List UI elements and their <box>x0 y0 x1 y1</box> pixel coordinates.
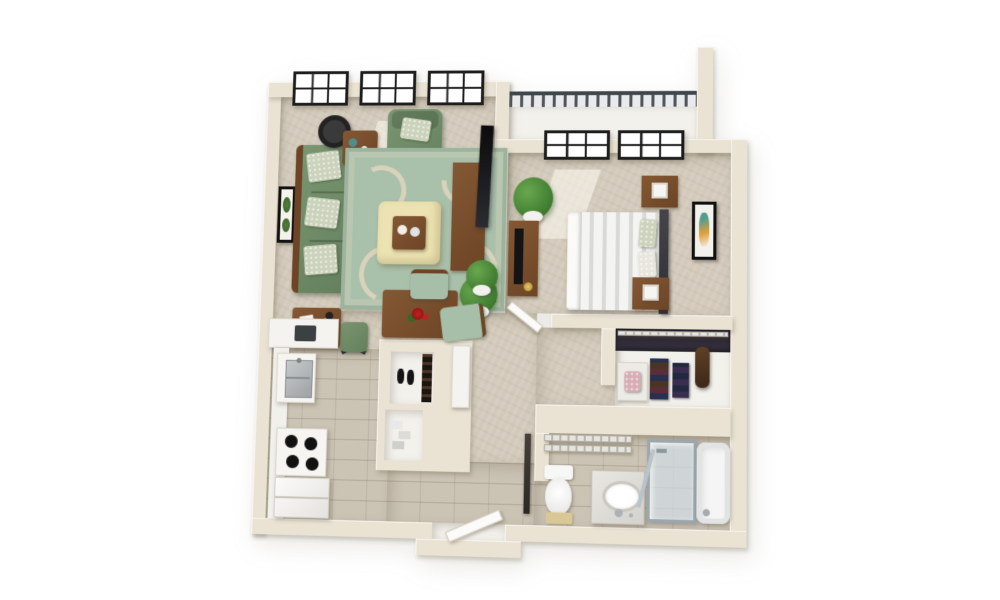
balcony-railing <box>509 91 697 107</box>
plant-pot <box>473 285 491 296</box>
serving-tray <box>392 216 426 250</box>
desk-chair <box>336 320 373 360</box>
entry-threshold-step <box>415 539 521 559</box>
sofa-pillow <box>303 244 337 276</box>
wall-art-print <box>280 189 293 240</box>
living-room-window <box>359 71 416 106</box>
nightstand <box>641 176 678 208</box>
accent-chair-pillow <box>400 117 432 142</box>
wall-bottom-left <box>251 518 432 539</box>
bedroom-wall-art <box>692 202 717 260</box>
bedroom-dresser <box>507 221 538 297</box>
shower-head <box>656 449 666 453</box>
shoe-rack <box>421 354 432 402</box>
closet-cushion <box>624 371 641 392</box>
bed-pillow <box>638 251 657 278</box>
sofa-pillow <box>306 150 342 183</box>
bedroom-window <box>544 130 610 159</box>
wall-closet-bath-band <box>535 404 730 437</box>
wall-bedroom-top <box>495 139 734 153</box>
linen-closet-interior <box>384 410 423 461</box>
wall-closet-left <box>601 328 616 385</box>
folded-clothes-stack <box>650 358 669 399</box>
built-in-cabinet <box>451 345 470 408</box>
living-room-window <box>292 71 349 106</box>
sofa-pillow <box>304 196 341 229</box>
toilet <box>542 465 575 519</box>
apartment-floorplan <box>237 42 750 568</box>
refrigerator <box>273 477 330 519</box>
floorplan-canvas <box>0 0 1000 600</box>
folded-clothes-stack <box>672 363 689 398</box>
shoes-pair <box>397 369 404 384</box>
wall-balcony-corner-tall <box>696 47 713 153</box>
bathtub <box>696 442 730 524</box>
vanity <box>591 470 645 525</box>
living-room-window <box>427 70 484 105</box>
bed-pillow <box>638 219 657 248</box>
cube-table-lamp <box>642 284 658 300</box>
bedroom-tv <box>514 229 524 285</box>
dining-chair <box>439 303 486 342</box>
oval-sink <box>602 481 641 513</box>
stainless-sink <box>285 360 314 398</box>
stove <box>275 427 328 476</box>
dresser-lamp <box>524 282 533 291</box>
faucet <box>614 509 622 518</box>
closet-dark-shelf-interior <box>615 328 730 352</box>
garment-bag <box>695 347 710 388</box>
cube-table-lamp <box>652 183 668 199</box>
flower-centerpiece <box>412 308 424 320</box>
dining-chair <box>410 269 448 299</box>
nightstand <box>632 277 669 310</box>
wall-bedroom-bottom <box>551 314 733 330</box>
bath-mat <box>546 512 573 524</box>
kitchen-upper-counter <box>268 318 339 349</box>
tub-faucet <box>703 509 710 517</box>
microwave <box>294 325 316 341</box>
closet-bench <box>617 362 648 401</box>
bedroom-window <box>618 130 685 160</box>
kitchen-sink-unit <box>276 353 317 403</box>
linen-closet-supplies <box>391 421 403 429</box>
wall-outer-right <box>730 139 748 531</box>
shower-enclosure <box>646 439 696 523</box>
